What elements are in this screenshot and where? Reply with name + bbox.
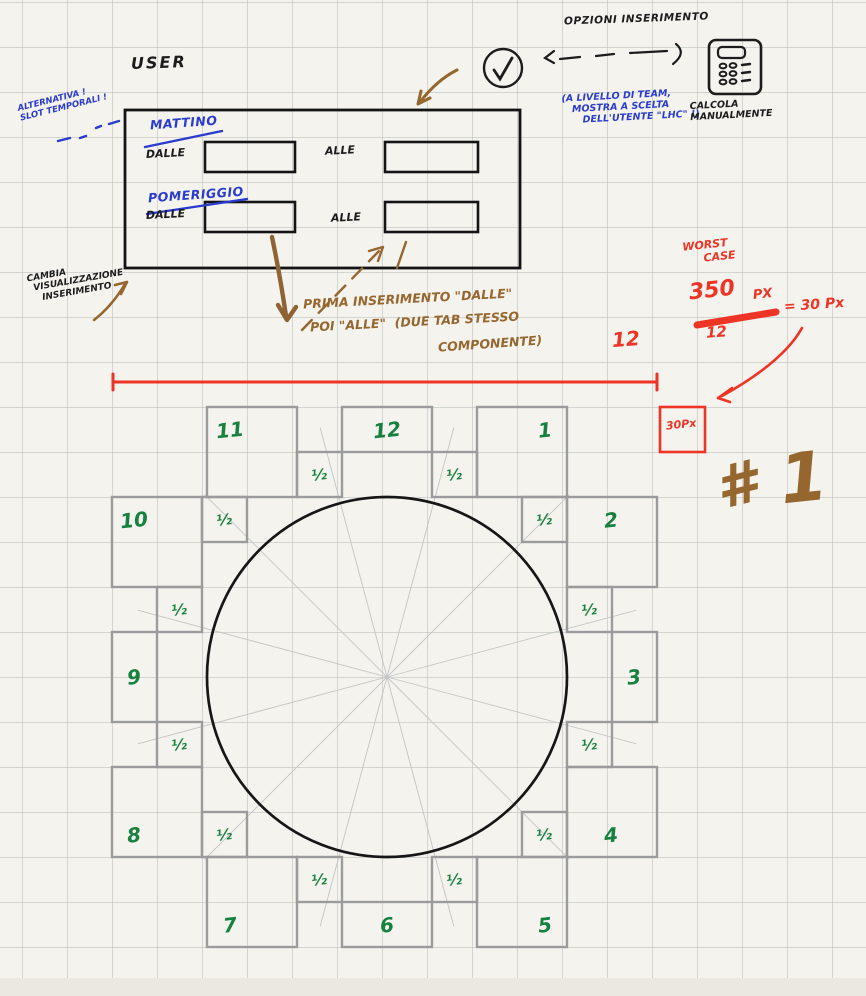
fraction-unit: PX [752,287,773,304]
clock-spoke [138,677,387,744]
hour-label-12: 12 [372,417,402,444]
worst-case-label: WORSTCASE [682,236,736,267]
half-hour-label: ½ [310,870,328,890]
half-hour-label: ½ [170,600,188,620]
half-hour-label: ½ [580,600,598,620]
clock-spoke [320,428,387,677]
clock-spoke [138,610,387,677]
arrow-down-thick [272,237,296,320]
input-dalle-afternoon [205,202,295,232]
red-arrow-to-box [718,328,802,402]
hour-label-9: 9 [126,664,142,689]
hour-box-5 [477,857,567,947]
input-alle-afternoon [385,202,478,232]
red-twelve-label: 12 [611,327,640,352]
hash-number: 1 [776,438,831,521]
arrow-to-user-box [418,70,457,104]
alle-morning-label: ALLE [325,144,356,158]
hour-label-11: 11 [215,417,245,444]
dalle-morning-label: DALLE [146,147,186,162]
hour-label-4: 4 [602,822,619,847]
fraction-numerator: 350 [688,276,736,306]
hour-label-3: 3 [626,664,642,689]
half-hour-label: ½ [445,465,463,485]
half-hour-label: ½ [445,870,463,890]
input-alle-morning [385,142,478,172]
hour-label-1: 1 [537,417,553,442]
hour-label-2: 2 [603,507,619,532]
user-title: USER [131,53,187,73]
hour-label-7: 7 [222,912,238,937]
half-hour-label: ½ [535,825,553,845]
hour-box-1 [477,407,567,497]
hour-label-6: 6 [379,912,395,937]
dalle-afternoon-label: DALLE [146,208,186,223]
clock-spoke [387,428,454,677]
half-hour-label: ½ [170,735,188,755]
calcola-manualmente-label: CALCOLAMANUALMENTE [689,98,772,124]
hour-box-7 [207,857,297,947]
half-hour-label: ½ [580,735,598,755]
half-hour-label: ½ [215,510,233,530]
half-hour-label: ½ [535,510,553,530]
notebook-page: 121234567891011½½½½½½½½½½½½ OPZIONI INSE… [0,0,866,996]
clock-spoke [387,677,454,926]
half-hour-label: ½ [310,465,328,485]
clock-spoke [387,677,636,744]
half-hour-label: ½ [215,825,233,845]
hour-label-10: 10 [119,507,149,534]
clock-spoke [387,610,636,677]
fraction-denominator: 12 [705,323,727,342]
clock-diagram: 121234567891011½½½½½½½½½½½½ [112,407,657,947]
check-circle-icon [484,49,522,87]
hour-box-8 [112,767,202,857]
clock-spoke [320,677,387,926]
alle-afternoon-label: ALLE [331,211,362,225]
hour-label-5: 5 [537,912,553,937]
dashed-connector-arrow [545,44,681,64]
hour-label-8: 8 [126,822,142,847]
calculator-icon [709,40,761,94]
input-dalle-morning [205,142,295,172]
red-measure-line [113,374,657,390]
